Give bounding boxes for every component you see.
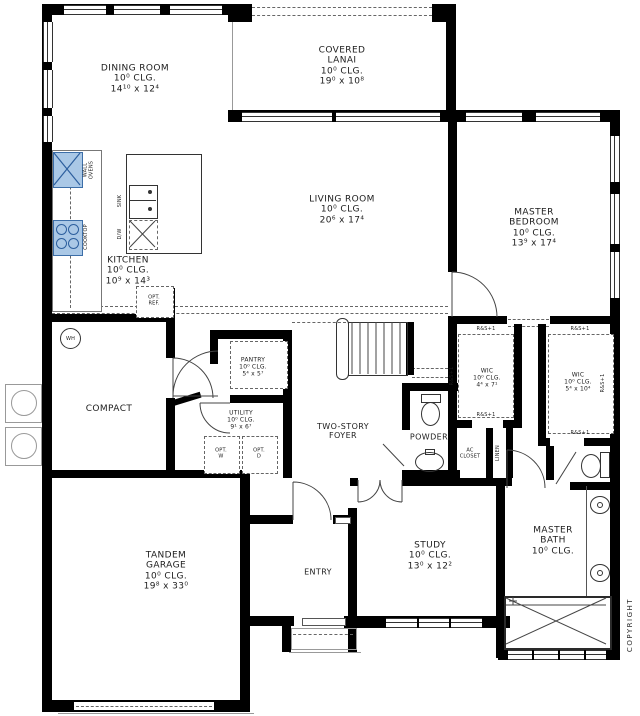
porch-step-line (289, 652, 361, 653)
wall (228, 4, 252, 22)
dining-room-label: DINING ROOM 10⁰ CLG. 14¹⁰ x 12⁴ (101, 63, 169, 94)
cooktop-burner (68, 238, 79, 249)
window (386, 618, 482, 628)
window (610, 252, 620, 298)
window (43, 22, 53, 62)
two-story-foyer-label: TWO-STORY FOYER (317, 422, 369, 440)
equipment-pad-unit (11, 390, 37, 416)
dishwasher-label: D/W (118, 228, 124, 239)
tandem-garage-label: TANDEM GARAGE 10⁰ CLG. 19⁸ x 33⁰ (144, 550, 189, 591)
master-bedroom-label: MASTER BEDROOM 10⁰ CLG. 13⁹ x 17⁴ (509, 207, 559, 248)
wall (402, 383, 410, 430)
wall (282, 616, 291, 652)
wall (538, 438, 550, 446)
window (43, 116, 53, 142)
shower (504, 596, 612, 650)
staircase (348, 322, 408, 376)
window (64, 5, 106, 15)
wall (486, 428, 493, 478)
wic-right-label: WIC 10⁰ CLG. 5⁴ x 10⁴ (564, 373, 592, 394)
lanai-screen-line (252, 15, 432, 16)
door-swing-master-bedroom (452, 272, 497, 317)
compact-label: COMPACT (86, 404, 133, 414)
faucet (148, 190, 152, 194)
window (560, 650, 584, 660)
covered-lanai-label: COVERED LANAI 10⁰ CLG. 19⁰ x 10⁸ (319, 45, 366, 86)
sliding-glass-door (336, 112, 440, 122)
linen-label: LINEN (496, 445, 502, 461)
cooktop-burner (56, 238, 67, 249)
faucet (148, 207, 152, 211)
wall-ovens (53, 152, 83, 188)
opt-dryer-label: OPT. D (253, 448, 265, 460)
ceiling-break-line (412, 368, 448, 369)
entry-niche (335, 517, 351, 524)
opt-washer-label: OPT. W (215, 448, 227, 460)
study-label: STUDY 10⁰ CLG. 13⁰ x 12² (408, 540, 453, 571)
window (114, 5, 160, 15)
window (508, 650, 532, 660)
kitchen-label: KITCHEN 10⁰ CLG. 10⁹ x 14³ (106, 255, 151, 286)
window-mullion (417, 618, 419, 628)
master-bath-label: MASTER BATH 10⁰ CLG. (532, 525, 574, 556)
door-swing-entry-hall (293, 482, 331, 520)
dishwasher (129, 220, 158, 250)
sliding-glass-door (242, 112, 332, 122)
wall (446, 20, 456, 118)
wall (448, 420, 472, 428)
door-swing-study-left (358, 480, 380, 502)
rod-shelf-label: R&S+1 (601, 374, 607, 393)
wall (166, 398, 175, 470)
wall (514, 324, 522, 428)
window (610, 136, 620, 182)
toilet-tank (600, 452, 610, 478)
wall (250, 515, 293, 524)
wall (538, 324, 546, 446)
wall (570, 482, 612, 490)
wall (448, 428, 457, 478)
faucet (425, 449, 435, 455)
door-leaf-powder (383, 444, 404, 466)
toilet-bowl (581, 454, 601, 478)
wall (230, 395, 291, 403)
wall (350, 478, 358, 486)
window-mullion (449, 618, 451, 628)
wall (240, 470, 250, 712)
porch-roof-line (293, 634, 353, 635)
wall (169, 392, 201, 407)
entry-label: ENTRY (304, 567, 332, 576)
copyright-text: COPYRIGHT (626, 598, 634, 652)
kitchen-sink (129, 185, 158, 219)
wall (546, 446, 554, 480)
door-swing-study-right (380, 480, 402, 502)
wall (550, 316, 620, 324)
wall (448, 316, 507, 324)
powder-label: POWDER (410, 432, 448, 441)
wall (503, 420, 522, 428)
window (536, 112, 600, 122)
equipment-pad-unit (11, 433, 37, 459)
pantry-label: PANTRY 10⁰ CLG. 5⁴ x 5⁷ (239, 358, 267, 379)
ceiling-break-line (412, 377, 448, 378)
kitchen-sink-divider (129, 200, 156, 201)
garage-door-line (76, 706, 212, 707)
window (43, 70, 53, 108)
window (534, 650, 558, 660)
rod-shelf-label: R&S+1 (477, 327, 496, 333)
vanity-sink-drain (597, 570, 603, 576)
entry-porch-outline (291, 628, 357, 650)
door-swing-compact (173, 358, 213, 398)
rod-shelf-label: R&S+1 (571, 327, 590, 333)
wall (506, 428, 513, 478)
window (610, 194, 620, 244)
living-room-label: LIVING ROOM 10⁰ CLG. 20⁶ x 17⁴ (309, 194, 375, 225)
door-swing-utility (200, 403, 230, 433)
window (466, 112, 522, 122)
utility-label: UTILITY 10⁰ CLG. 9¹ x 6⁷ (227, 411, 255, 432)
wall (210, 330, 291, 339)
cooktop-label: COOKTOP (84, 224, 90, 250)
toilet-bowl (421, 402, 440, 426)
wall (584, 438, 620, 446)
rod-shelf-label: R&S+1 (571, 431, 590, 437)
wall (448, 122, 457, 272)
door-leaf-toilet-alcove (556, 452, 576, 484)
stair-rail (336, 318, 349, 380)
window (586, 650, 606, 660)
pedestal-sink (415, 452, 444, 472)
wic-left-label: WIC 10⁰ CLG. 4⁴ x 7¹ (473, 369, 501, 390)
lanai-screen-line (232, 20, 233, 110)
ceiling-break-line (508, 319, 549, 320)
front-door (302, 618, 346, 626)
wall-ovens-label: WALL OVENS (83, 161, 95, 179)
ac-closet-label: AC CLOSET (460, 448, 481, 460)
wall (42, 4, 52, 712)
vanity-sink-drain (597, 502, 603, 508)
floor-plan: WH (0, 0, 640, 716)
opt-ref-label: OPT. REF. (148, 295, 160, 307)
water-heater-label: WH (66, 336, 75, 342)
cooktop-burner (68, 224, 79, 235)
water-heater: WH (60, 328, 81, 349)
window (170, 5, 222, 15)
cooktop-burner (56, 224, 67, 235)
lanai-screen-line (252, 7, 432, 8)
rod-shelf-label: R&S+1 (450, 367, 456, 386)
vanity-edge (586, 486, 587, 596)
sink-label: SINK (118, 195, 124, 207)
wall (166, 314, 175, 358)
rod-shelf-label: R&S+1 (477, 413, 496, 419)
driveway-edge-line (58, 713, 254, 714)
